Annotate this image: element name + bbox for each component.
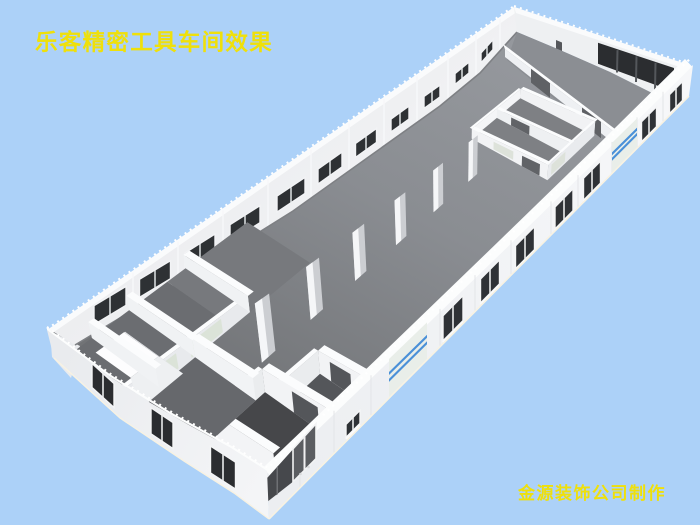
svg-text:乐客精密工具车间效果: 乐客精密工具车间效果 [35, 29, 273, 55]
svg-text:金源装饰公司制作: 金源装饰公司制作 [517, 483, 666, 503]
